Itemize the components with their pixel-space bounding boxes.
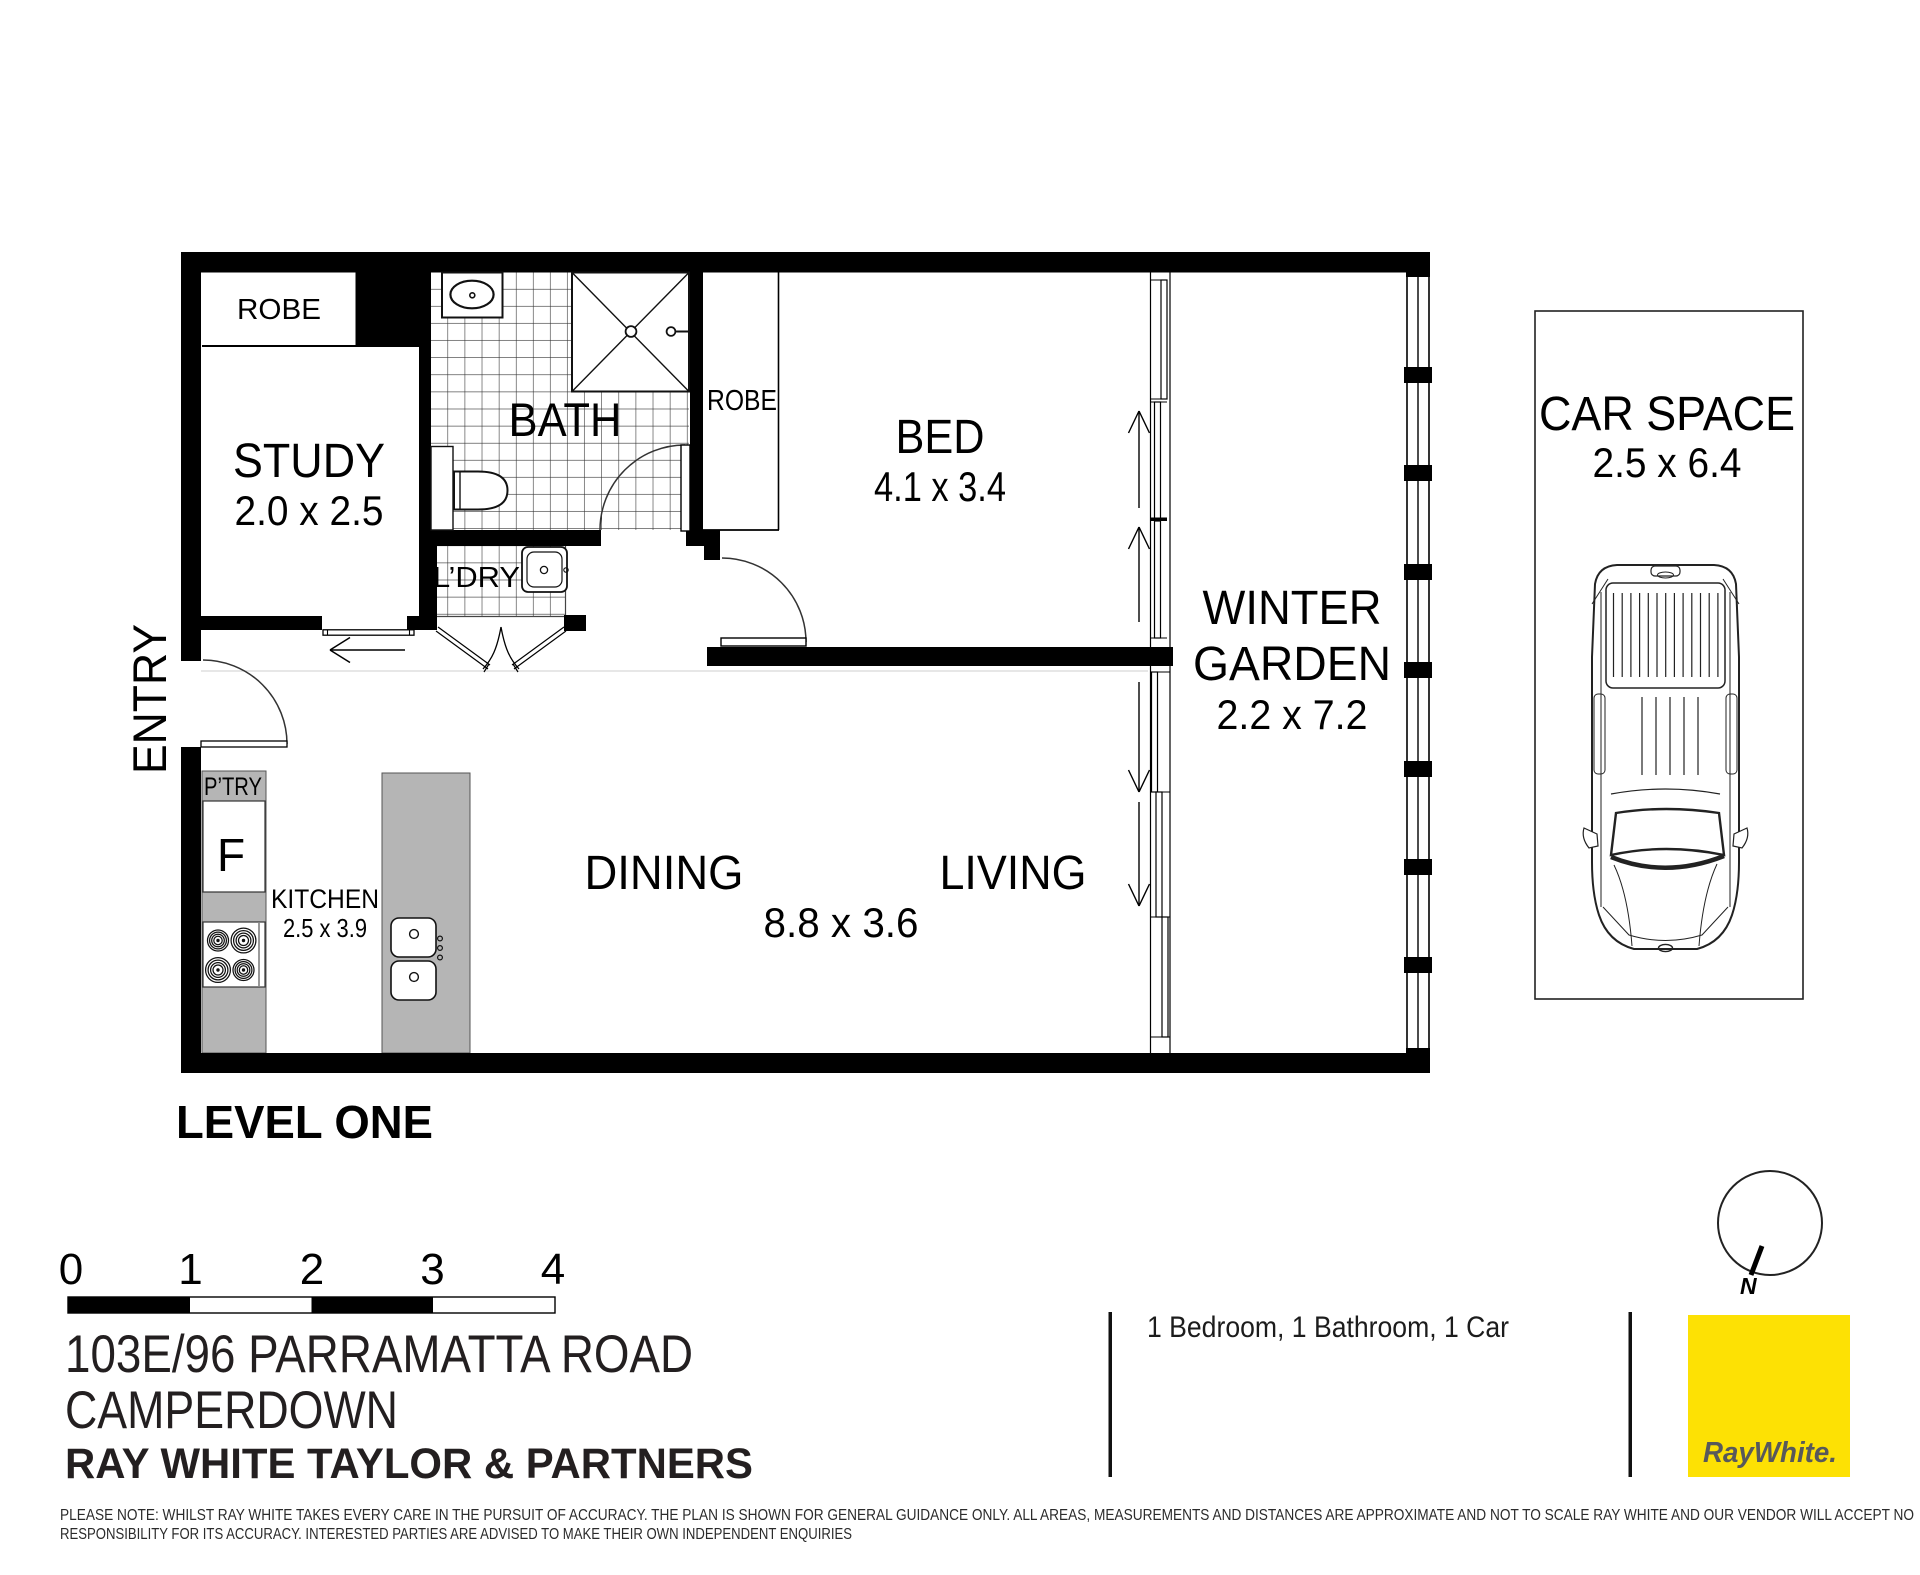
svg-text:3: 3 <box>420 1245 444 1294</box>
svg-text:2.5 x 3.9: 2.5 x 3.9 <box>283 913 367 943</box>
svg-text:CAMPERDOWN: CAMPERDOWN <box>65 1381 398 1440</box>
svg-text:BED: BED <box>896 411 985 464</box>
svg-text:BATH: BATH <box>509 393 622 446</box>
svg-text:2: 2 <box>300 1245 324 1294</box>
svg-text:N: N <box>1740 1273 1757 1299</box>
svg-text:P’TRY: P’TRY <box>204 773 262 801</box>
svg-text:LEVEL ONE: LEVEL ONE <box>176 1096 433 1148</box>
svg-text:LIVING: LIVING <box>940 847 1087 900</box>
svg-text:ROBE: ROBE <box>707 385 777 417</box>
svg-text:ENTRY: ENTRY <box>123 624 176 774</box>
svg-text:103E/96 PARRAMATTA ROAD: 103E/96 PARRAMATTA ROAD <box>65 1325 693 1384</box>
svg-text:2.0 x 2.5: 2.0 x 2.5 <box>235 487 384 534</box>
svg-text:KITCHEN: KITCHEN <box>271 884 379 914</box>
svg-text:1: 1 <box>178 1245 202 1294</box>
svg-text:STUDY: STUDY <box>233 435 385 488</box>
svg-text:1 Bedroom, 1 Bathroom, 1 Car: 1 Bedroom, 1 Bathroom, 1 Car <box>1147 1311 1509 1344</box>
svg-text:4.1 x 3.4: 4.1 x 3.4 <box>874 463 1006 510</box>
svg-text:DINING: DINING <box>585 847 744 900</box>
svg-text:F: F <box>217 829 245 881</box>
svg-text:2.5 x 6.4: 2.5 x 6.4 <box>1593 439 1742 486</box>
svg-text:L’DRY: L’DRY <box>433 562 520 594</box>
svg-text:RayWhite.: RayWhite. <box>1703 1437 1837 1469</box>
svg-text:PLEASE NOTE: WHILST RAY WHITE: PLEASE NOTE: WHILST RAY WHITE TAKES EVER… <box>60 1507 1914 1524</box>
svg-text:8.8 x 3.6: 8.8 x 3.6 <box>764 899 919 946</box>
svg-text:WINTER: WINTER <box>1203 582 1382 635</box>
svg-text:4: 4 <box>541 1245 565 1294</box>
svg-text:CAR SPACE: CAR SPACE <box>1539 388 1795 441</box>
svg-text:ROBE: ROBE <box>237 294 321 326</box>
svg-text:0: 0 <box>59 1245 83 1294</box>
svg-text:RESPONSIBILITY FOR ITS ACCURAC: RESPONSIBILITY FOR ITS ACCURACY. INTERES… <box>60 1526 852 1543</box>
svg-text:2.2 x 7.2: 2.2 x 7.2 <box>1217 691 1368 738</box>
svg-text:GARDEN: GARDEN <box>1193 638 1391 691</box>
svg-text:RAY WHITE TAYLOR & PARTNERS: RAY WHITE TAYLOR & PARTNERS <box>65 1440 753 1488</box>
